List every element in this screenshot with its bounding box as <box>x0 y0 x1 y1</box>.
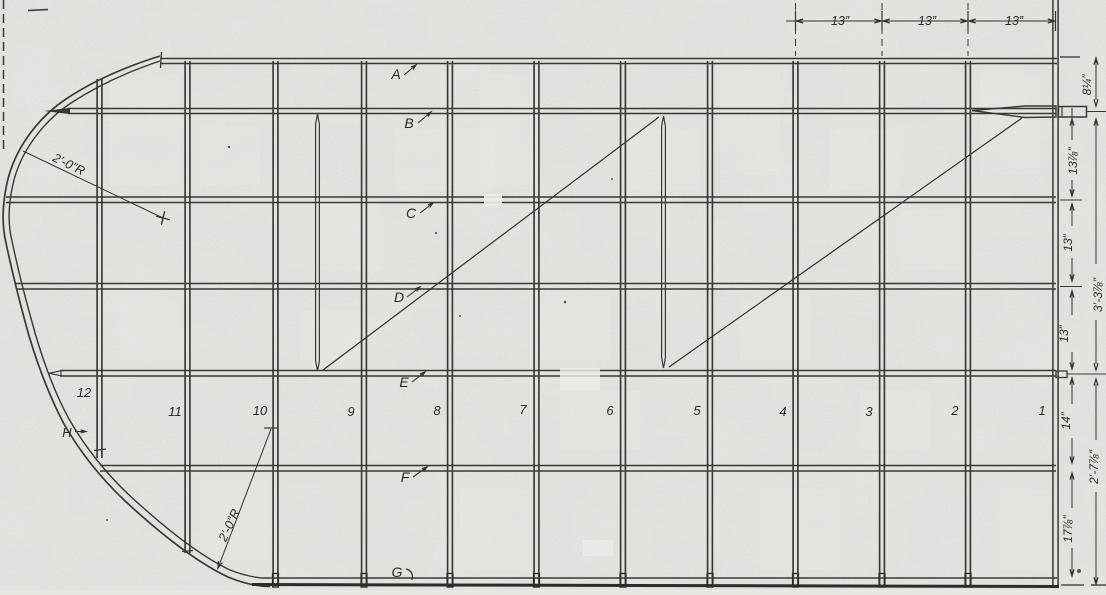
svg-text:3: 3 <box>865 404 873 419</box>
svg-text:2: 2 <box>950 403 959 418</box>
svg-text:13”: 13” <box>918 14 937 28</box>
svg-text:13”: 13” <box>831 14 850 28</box>
svg-text:6: 6 <box>606 403 614 418</box>
svg-text:8: 8 <box>433 403 441 418</box>
svg-text:A: A <box>390 66 400 82</box>
svg-text:14”: 14” <box>1059 411 1073 429</box>
svg-text:D: D <box>394 289 404 305</box>
svg-text:G: G <box>392 564 403 580</box>
svg-text:13⅞”: 13⅞” <box>1066 146 1080 174</box>
svg-text:H: H <box>62 425 72 440</box>
svg-text:9: 9 <box>347 404 354 419</box>
svg-text:12: 12 <box>77 385 92 400</box>
svg-text:C: C <box>406 205 417 221</box>
svg-text:B: B <box>404 115 413 131</box>
svg-text:13”: 13” <box>1057 324 1071 342</box>
svg-text:8¼”: 8¼” <box>1080 74 1094 96</box>
svg-text:F: F <box>401 469 411 485</box>
svg-text:2’-7⅞”: 2’-7⅞” <box>1087 449 1101 485</box>
svg-text:4: 4 <box>779 404 786 419</box>
svg-text:13”: 13” <box>1061 233 1075 251</box>
svg-text:3’-3⅞”: 3’-3⅞” <box>1091 277 1105 312</box>
svg-text:13”: 13” <box>1005 14 1024 28</box>
svg-text:10: 10 <box>253 403 268 418</box>
svg-text:E: E <box>399 374 409 390</box>
svg-text:17⅞”: 17⅞” <box>1061 514 1075 542</box>
svg-text:1: 1 <box>1038 403 1045 418</box>
svg-text:7: 7 <box>519 402 527 417</box>
svg-text:5: 5 <box>693 403 701 418</box>
svg-text:11: 11 <box>168 404 182 419</box>
